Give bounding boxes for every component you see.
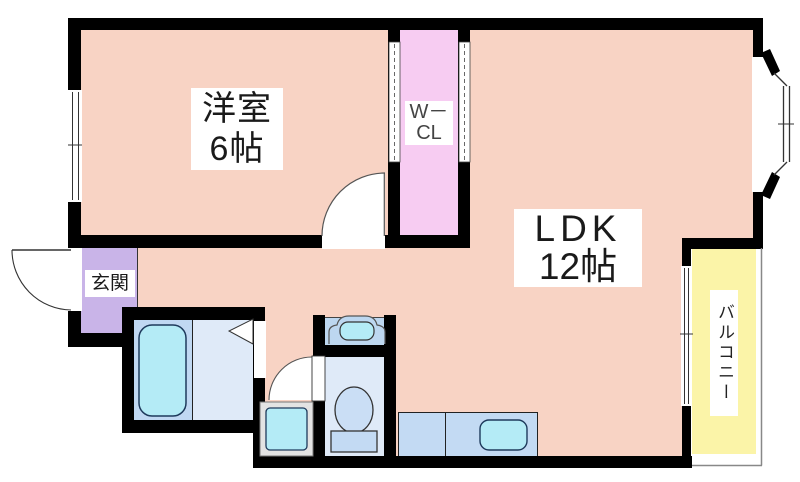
wall-closet-right [458, 29, 470, 248]
wall-balcony-top [682, 238, 763, 249]
wall-closet-left [388, 29, 400, 248]
washroom-floor [192, 320, 253, 420]
kitchen-counter-divider [445, 413, 446, 456]
wcl-line1: W－ [410, 102, 449, 123]
wall-bottom [253, 456, 692, 468]
washbasin-area-floor [325, 317, 384, 345]
balcony-text: バルコニー [710, 303, 738, 403]
wall-bath-bottom [122, 420, 265, 433]
western-room-label: 洋室 6帖 [191, 88, 283, 170]
entrance-door-icon [12, 250, 71, 310]
wall-toilet-right [384, 315, 396, 456]
entrance-label: 玄関 [85, 270, 135, 297]
wall-bath-top [122, 307, 265, 320]
western-room-size: 6帖 [210, 129, 265, 169]
bathroom-floor [134, 320, 192, 420]
wall-western-room-bottom [68, 235, 322, 248]
wcl-line2: CL [416, 123, 442, 144]
wall-top [68, 18, 763, 30]
wall-toilet-left [313, 315, 325, 456]
ldk-label: LDK 12帖 [514, 209, 642, 287]
wall-ldk-right-lower [682, 248, 691, 456]
wall-entrance-bottom [68, 333, 128, 347]
entrance-text: 玄関 [91, 270, 129, 297]
floor-plan: 洋室 6帖 W－ CL LDK 12帖 玄関 バルコニー [0, 0, 800, 482]
wall-left [68, 18, 81, 347]
ldk-floor-upper-right [682, 29, 753, 238]
entrance-floor-lower [81, 310, 122, 333]
western-room-name: 洋室 [202, 89, 272, 129]
wall-bath-left [122, 307, 134, 433]
wall-right-upper [753, 18, 763, 248]
ldk-name: LDK [535, 210, 622, 248]
toilet-room-floor [325, 357, 384, 456]
ldk-size: 12帖 [539, 248, 617, 286]
walk-in-closet-label: W－ CL [405, 101, 453, 145]
bay-window-icon [761, 49, 794, 199]
wall-toilet-basin-divider [325, 345, 384, 357]
wall-washroom-right [253, 307, 265, 456]
balcony-label: バルコニー [710, 290, 738, 416]
kitchen-counter [398, 412, 538, 457]
